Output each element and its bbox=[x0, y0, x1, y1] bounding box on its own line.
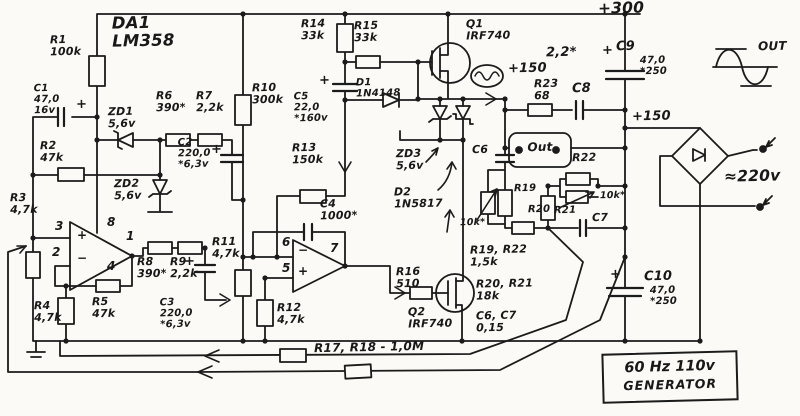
trim2-label: 10k* bbox=[600, 191, 626, 202]
zd2-label: ZD2 5,6v bbox=[114, 178, 142, 202]
ac-terminal-top bbox=[760, 138, 775, 152]
r14-label: R14 33k bbox=[301, 18, 326, 42]
opamp1-minus-sign: − bbox=[77, 252, 87, 265]
d1-label: D1 1N4148 bbox=[356, 78, 401, 101]
r3-label: R3 4,7k bbox=[10, 192, 38, 216]
c10-label: C10 bbox=[644, 270, 673, 285]
opamp2-plus-sign: + bbox=[298, 265, 308, 278]
r5-resistor bbox=[96, 280, 120, 292]
generator-title-line2: GENERATOR bbox=[604, 376, 736, 393]
c1-plus: + bbox=[76, 98, 87, 112]
r10-resistor bbox=[235, 95, 251, 125]
r9-resistor bbox=[178, 242, 202, 254]
c2-plus: + bbox=[211, 143, 222, 157]
c7-label: C7 bbox=[592, 212, 608, 224]
r19-r22-value-label: R19, R22 1,5k bbox=[470, 243, 528, 268]
d2-label: D2 1N5817 bbox=[394, 185, 443, 210]
r2-resistor bbox=[58, 168, 84, 181]
r1-label: R1 100k bbox=[50, 34, 82, 58]
v150-rail-label: +150 bbox=[632, 110, 671, 125]
gate-waveform-icon bbox=[471, 65, 503, 87]
r17-resistor bbox=[280, 349, 306, 362]
r20-label: R20 bbox=[528, 205, 550, 216]
zd3-label: ZD3 5,6v bbox=[396, 148, 424, 172]
q2-label: Q2 IRF740 bbox=[408, 306, 453, 331]
opamp1-plus-sign: + bbox=[77, 229, 87, 242]
r15-resistor bbox=[356, 56, 380, 68]
c9-value-label: 47,0 *250 bbox=[640, 56, 667, 78]
r23-label: R23 68 bbox=[534, 78, 559, 102]
r15-label: R15 33k bbox=[354, 20, 379, 44]
c4-capacitor bbox=[304, 224, 312, 240]
r10-label: R10 300k bbox=[252, 82, 284, 106]
r19-resistor bbox=[498, 190, 512, 216]
ac-terminal-bottom bbox=[757, 196, 772, 210]
c4-label: C4 1000* bbox=[320, 198, 358, 223]
r22-resistor bbox=[566, 173, 590, 185]
c6-label: C6 bbox=[472, 144, 488, 156]
q1-mosfet bbox=[430, 43, 470, 83]
sine-out-label: OUT bbox=[758, 40, 787, 54]
r7-label: R7 2,2k bbox=[196, 90, 224, 114]
r11-label: R11 4,7k bbox=[212, 236, 240, 260]
r3-resistor bbox=[26, 252, 40, 278]
r23-resistor bbox=[528, 104, 552, 116]
c9-plus: + bbox=[602, 44, 613, 58]
bridge-rectifier bbox=[672, 128, 728, 184]
up-arrow-d2a bbox=[445, 210, 454, 232]
generator-title-box: 60 Hz 110v GENERATOR bbox=[601, 350, 738, 404]
c5-label: C5 22,0 *160v bbox=[294, 92, 328, 125]
c5-plus: + bbox=[319, 74, 330, 88]
opamp1-pin4-label: 4 bbox=[107, 260, 116, 273]
r17-r18-value-label: R17, R18 - 1,0M bbox=[314, 340, 424, 355]
r21-label: R21 bbox=[554, 206, 576, 217]
p-arrow-zd3 bbox=[426, 148, 438, 162]
c8-capacitor bbox=[576, 101, 583, 119]
r6-label: R6 390* bbox=[156, 90, 186, 114]
r19-label: R19 bbox=[514, 184, 536, 195]
zd1-label: ZD1 5,6v bbox=[108, 106, 136, 130]
opamp1-pin3-label: 3 bbox=[55, 220, 64, 233]
c7-capacitor bbox=[580, 220, 586, 236]
r8-label: R8 390* bbox=[137, 256, 167, 280]
c10-plus: + bbox=[610, 268, 621, 282]
opamp2-pin6-label: 6 bbox=[282, 236, 291, 249]
c2-capacitor bbox=[221, 155, 243, 162]
c6-capacitor bbox=[496, 155, 514, 162]
c5-capacitor bbox=[333, 84, 357, 91]
r20-r21-value-label: R20, R21 18k bbox=[476, 277, 534, 302]
opamp1-pin8-label: 8 bbox=[107, 216, 116, 229]
r18-resistor bbox=[345, 364, 372, 378]
r2-label: R2 47k bbox=[40, 140, 64, 164]
c10-value-label: 47,0 *250 bbox=[650, 286, 677, 308]
r8-resistor bbox=[148, 242, 172, 254]
arrows bbox=[17, 93, 594, 378]
c6-c7-value-label: C6, C7 0,15 bbox=[476, 310, 517, 335]
r20-resistor bbox=[512, 222, 534, 234]
opamp2-pin7-label: 7 bbox=[330, 242, 339, 255]
r22-label: R22 bbox=[572, 152, 597, 164]
c8-label: C8 bbox=[572, 82, 591, 96]
c9-label: C9 bbox=[616, 40, 635, 54]
c3-plus: + bbox=[184, 255, 195, 269]
q1-label: Q1 IRF740 bbox=[466, 18, 511, 43]
da1-label: DA1 LM358 bbox=[112, 13, 175, 50]
r4-label: R4 4,7k bbox=[34, 300, 62, 324]
r5-label: R5 47k bbox=[92, 296, 116, 320]
r12-label: R12 4,7k bbox=[277, 302, 305, 326]
ac-220v-label: ≈220v bbox=[724, 167, 781, 185]
r12-resistor bbox=[257, 300, 273, 326]
output-sine-icon bbox=[713, 49, 777, 86]
r1-resistor bbox=[89, 56, 105, 86]
opamp1-pin1-label: 1 bbox=[126, 230, 135, 243]
c9-capacitor bbox=[606, 71, 644, 79]
zd2-zener bbox=[149, 180, 171, 197]
opamp2-pin5-label: 5 bbox=[282, 262, 291, 275]
v300-label: +300 bbox=[598, 0, 644, 17]
ground-icon bbox=[27, 341, 45, 357]
v150-top-label: +150 bbox=[508, 62, 547, 77]
trim1-label: 10k* bbox=[460, 218, 486, 229]
schematic-canvas: DA1 LM358 R1 100k C1 47,0 16v + ZD1 5,6v… bbox=[0, 0, 800, 416]
c1-label: C1 47,0 16v bbox=[34, 84, 60, 117]
c3-label: C3 220,0 *6,3v bbox=[160, 298, 193, 331]
r13-label: R13 150k bbox=[292, 142, 324, 166]
out-box-label: Out bbox=[509, 140, 571, 154]
opamp1-pin2-label: 2 bbox=[52, 246, 61, 259]
r11-resistor bbox=[235, 270, 251, 296]
c2-label: C2 220,0 *6,3v bbox=[178, 138, 211, 171]
r16-label: R16 510 bbox=[396, 266, 421, 290]
c8-value-label: 2,2* bbox=[546, 46, 577, 61]
zd3-zener bbox=[429, 106, 451, 122]
r14-resistor bbox=[337, 24, 353, 52]
opamp2-minus-sign: − bbox=[298, 244, 308, 257]
